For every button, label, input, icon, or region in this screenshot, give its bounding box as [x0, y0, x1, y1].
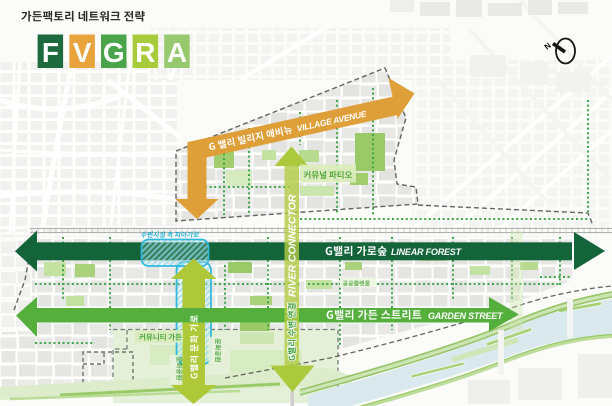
svg-text:V: V [73, 37, 92, 68]
svg-text:G: G [103, 37, 125, 68]
svg-text:RIVER CONNECTOR: RIVER CONNECTOR [287, 194, 299, 297]
svg-text:LINEAR FOREST: LINEAR FOREST [391, 247, 463, 257]
svg-text:F: F [42, 37, 59, 68]
svg-text:A: A [167, 37, 187, 68]
svg-text:GARDEN STREET: GARDEN STREET [428, 311, 504, 321]
svg-text:R: R [135, 37, 155, 68]
